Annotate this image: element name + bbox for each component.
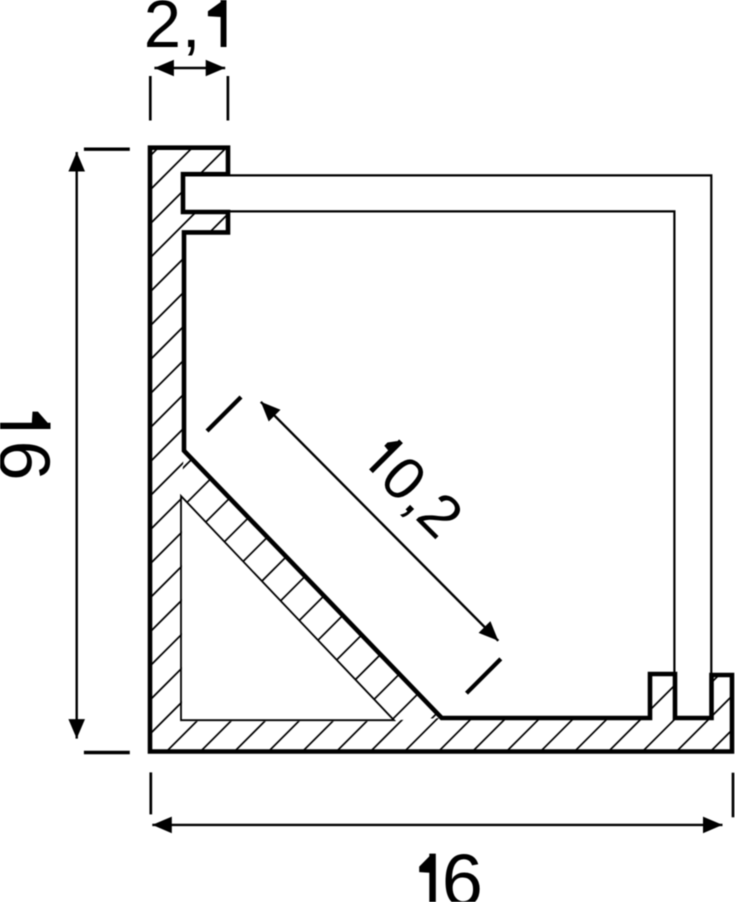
- svg-text:2,: 2,: [144, 0, 201, 62]
- svg-text:6: 6: [442, 839, 483, 902]
- svg-text:6: 6: [0, 441, 64, 481]
